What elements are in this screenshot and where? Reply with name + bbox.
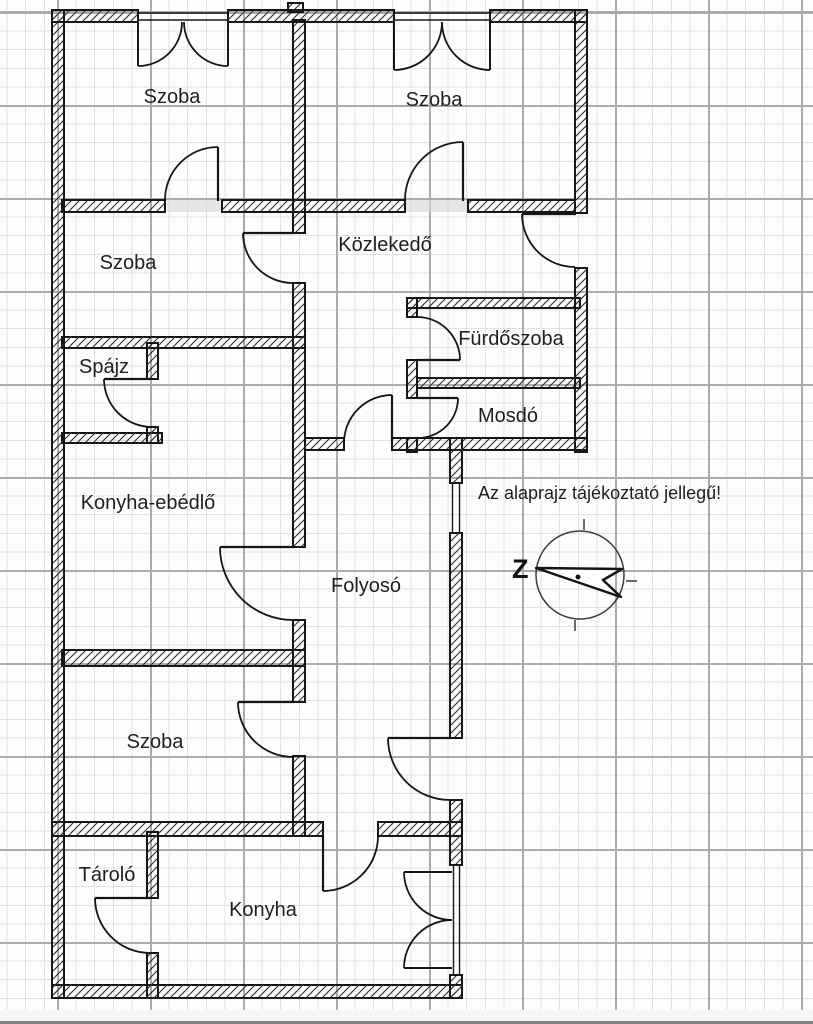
door-swing-arc <box>95 898 150 953</box>
door-szoba-middle <box>243 233 294 283</box>
scan-edge-strip <box>0 1010 813 1024</box>
compass: Z <box>512 519 637 631</box>
room-label-spajz: Spájz <box>79 356 129 378</box>
door-konyha-ebedlo <box>220 547 294 620</box>
door-spajz <box>104 379 152 427</box>
window-sill <box>138 13 228 20</box>
wall <box>52 985 462 998</box>
door-szoba-top-left <box>165 147 218 201</box>
wall <box>468 200 575 212</box>
window-leaf <box>138 22 228 66</box>
window-konyha-double <box>404 865 460 975</box>
door-swing-arc <box>238 702 293 757</box>
wall <box>293 283 305 547</box>
wall <box>305 438 344 450</box>
room-label-kozlekedo: Közlekedő <box>338 234 431 256</box>
wall <box>147 953 158 998</box>
door-szoba-bottom <box>238 702 294 757</box>
window-swing-arc <box>404 920 452 968</box>
room-label-konyha-ebedlo: Konyha-ebédlő <box>81 492 216 514</box>
wall <box>293 620 305 702</box>
wall <box>392 438 587 450</box>
window-folyoso <box>453 483 460 533</box>
room-label-furdoszoba: Fürdőszoba <box>458 328 564 350</box>
wall <box>417 378 580 388</box>
door-swing-arc <box>522 214 575 267</box>
window-sill <box>453 483 460 533</box>
door-konyha <box>323 836 378 891</box>
door-swing-arc <box>344 395 392 443</box>
threshold <box>406 200 466 212</box>
wall <box>62 200 165 212</box>
wall <box>62 337 305 348</box>
window-swing-arc <box>394 22 442 70</box>
window-swing-arc <box>184 22 228 66</box>
wall <box>147 343 158 379</box>
room-label-szoba-top-left: Szoba <box>144 86 202 108</box>
wall <box>450 438 462 483</box>
door-folyoso-kozlekedo <box>344 395 392 444</box>
graph-paper-canvas: Szoba Szoba Közlekedő Szoba Spájz Fürdős… <box>0 0 813 1024</box>
wall <box>490 10 587 22</box>
window-swing-arc <box>442 22 490 70</box>
window-sill <box>454 865 460 975</box>
door-szoba-top-right <box>405 142 463 201</box>
door-swing-arc <box>104 379 152 427</box>
wall <box>222 200 405 212</box>
door-swing-arc <box>220 547 293 620</box>
room-label-folyoso: Folyosó <box>331 575 401 597</box>
room-label-konyha: Konyha <box>229 899 298 921</box>
door-tarolo <box>95 898 151 953</box>
wall <box>52 822 323 836</box>
wall <box>407 298 580 308</box>
window-swing-arc <box>404 872 452 920</box>
wall <box>407 438 417 452</box>
wall <box>147 427 158 443</box>
window-sill <box>394 13 490 20</box>
disclaimer-note: Az alaprajz tájékoztató jellegű! <box>478 483 721 503</box>
door-swing-arc <box>418 398 458 438</box>
wall <box>228 10 394 22</box>
wall <box>293 20 305 233</box>
door-swing-arc <box>323 836 378 891</box>
room-label-szoba-middle: Szoba <box>100 252 158 274</box>
door-folyoso-exterior <box>388 738 451 800</box>
floor-plan-svg: Szoba Szoba Közlekedő Szoba Spájz Fürdős… <box>0 0 813 1024</box>
door-swing-arc <box>243 233 293 283</box>
window-swing-arc <box>138 22 182 66</box>
wall <box>52 10 64 998</box>
wall <box>62 650 305 666</box>
door-swing-arc <box>165 147 218 200</box>
wall <box>450 800 462 865</box>
chimney <box>288 3 303 12</box>
compass-north-letter: Z <box>512 554 529 584</box>
wall <box>575 268 587 452</box>
wall <box>407 360 417 398</box>
wall <box>450 533 462 738</box>
window-szoba-top-right <box>394 13 490 70</box>
wall <box>147 832 158 898</box>
wall <box>450 975 462 998</box>
door-entrance-kozlekedo <box>522 214 576 267</box>
room-label-szoba-bottom: Szoba <box>127 731 185 753</box>
wall <box>407 298 417 317</box>
door-swing-arc <box>418 317 460 360</box>
threshold <box>167 200 221 212</box>
room-label-szoba-top-right: Szoba <box>406 89 464 111</box>
room-label-mosdo: Mosdó <box>478 405 538 427</box>
compass-north-arrow <box>536 568 622 597</box>
room-label-tarolo: Tároló <box>79 864 136 886</box>
door-furdoszoba <box>417 317 460 360</box>
door-swing-arc <box>388 738 450 800</box>
door-swing-arc <box>405 142 463 200</box>
window-szoba-top-left <box>138 13 228 66</box>
door-mosdo <box>417 398 458 438</box>
compass-center-dot <box>576 575 581 580</box>
wall <box>575 10 587 213</box>
wall <box>293 756 305 836</box>
